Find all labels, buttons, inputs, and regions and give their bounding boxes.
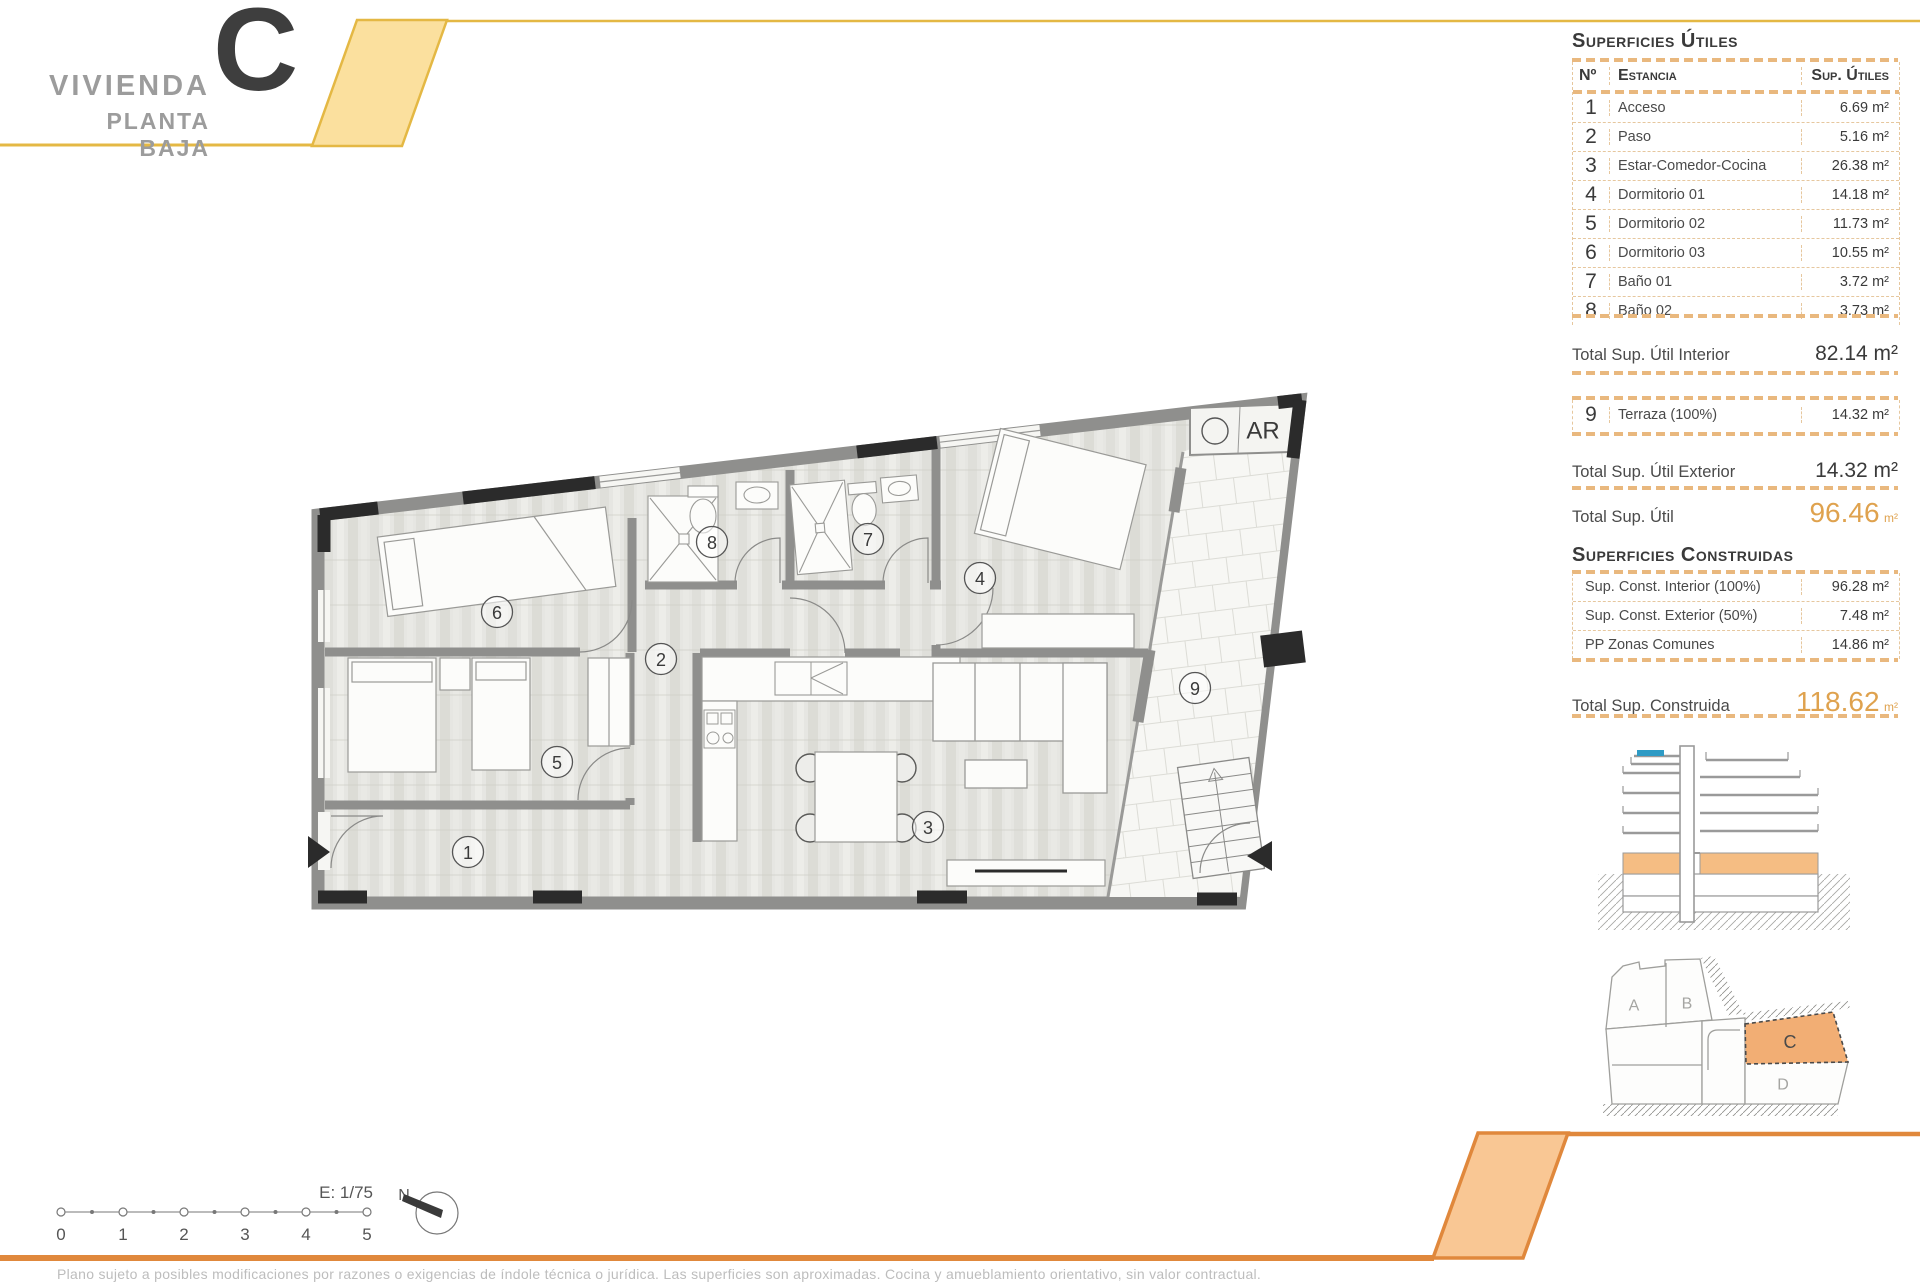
pool-blue xyxy=(1637,750,1664,756)
table-row: 2 Paso 5.16 m² xyxy=(1573,123,1899,152)
terraza-row: 9 Terraza (100%) 14.32 m² xyxy=(1572,400,1900,430)
unit-c-highlight xyxy=(1745,1012,1848,1064)
svg-text:4: 4 xyxy=(975,569,985,589)
svg-text:2: 2 xyxy=(656,650,666,670)
room-label-6: 6 xyxy=(482,597,513,628)
utiles-table-header: Nº Estancia Sup. Útiles xyxy=(1573,62,1899,90)
ground-floor-right-highlight xyxy=(1700,853,1818,874)
svg-text:5: 5 xyxy=(552,753,562,773)
left-tower-ticks xyxy=(1623,757,1631,833)
svg-text:3: 3 xyxy=(923,818,933,838)
site-label-a: A xyxy=(1629,998,1640,1015)
construidas-table: Sup. Const. Interior (100%) 96.28 m² Sup… xyxy=(1572,573,1900,659)
svg-text:8: 8 xyxy=(707,533,717,553)
top-accent-parallelogram xyxy=(312,20,447,146)
utiles-table: Nº Estancia Sup. Útiles 1 Acceso 6.69 m²… xyxy=(1572,62,1900,325)
construidas-heading: Superficies Construidas xyxy=(1572,544,1793,567)
project-name: VIVIENDA xyxy=(48,70,210,103)
total-exterior: Total Sup. Útil Exterior 14.32 m² xyxy=(1572,459,1898,483)
room-label-5: 5 xyxy=(542,747,573,778)
svg-text:7: 7 xyxy=(863,530,873,550)
room-label-8: 8 xyxy=(697,527,728,558)
room-label-1: 1 xyxy=(453,837,484,868)
site-label-b: B xyxy=(1682,996,1693,1013)
site-label-d: D xyxy=(1777,1077,1789,1094)
stove xyxy=(704,710,735,748)
svg-text:1: 1 xyxy=(463,843,473,863)
divider xyxy=(1572,714,1898,718)
divider xyxy=(1572,314,1898,318)
bottom-accent-band xyxy=(0,1128,1920,1268)
bed-dormitorio-01 xyxy=(974,428,1146,648)
table-row: 1 Acceso 6.69 m² xyxy=(1573,94,1899,123)
table-row: 7 Baño 01 3.72 m² xyxy=(1573,268,1899,297)
ar-box: AR xyxy=(1190,404,1295,455)
table-row: Sup. Const. Interior (100%) 96.28 m² xyxy=(1573,573,1899,602)
total-interior: Total Sup. Útil Interior 82.14 m² xyxy=(1572,342,1898,366)
floor-plan: AR xyxy=(250,320,1350,920)
site-label-c: C xyxy=(1784,1032,1797,1052)
divider xyxy=(1572,371,1898,375)
total-util: Total Sup. Útil 96.46 m² xyxy=(1572,497,1898,529)
divider xyxy=(1572,432,1898,436)
table-row: 3 Estar-Comedor-Cocina 26.38 m² xyxy=(1573,152,1899,181)
divider xyxy=(1572,658,1898,662)
room-label-7: 7 xyxy=(853,524,884,555)
col-area: Sup. Útiles xyxy=(1801,67,1899,85)
divider xyxy=(1573,90,1899,94)
utiles-heading: Superficies Útiles xyxy=(1572,30,1738,53)
divider xyxy=(1572,486,1898,490)
bottom-accent-parallelogram xyxy=(1433,1133,1568,1258)
ar-label: AR xyxy=(1246,418,1279,445)
right-tower-ticks xyxy=(1706,752,1818,831)
sideboard-dormitorio-01 xyxy=(982,614,1134,648)
tv-sideboard xyxy=(947,860,1105,886)
col-room: Estancia xyxy=(1609,67,1801,85)
left-tower xyxy=(1623,756,1680,833)
coffee-table xyxy=(965,760,1027,788)
svg-text:9: 9 xyxy=(1190,679,1200,699)
col-num: Nº xyxy=(1573,67,1609,85)
floor-name: PLANTA BAJA xyxy=(42,108,210,162)
core-shaft xyxy=(1680,746,1694,922)
hatch-strip-bottom xyxy=(1603,1104,1838,1116)
terrace-planter xyxy=(1260,631,1306,668)
areas-panel: Superficies Útiles Nº Estancia Sup. Útil… xyxy=(1572,0,1898,730)
building-section-diagram xyxy=(1598,742,1858,932)
room-label-9: 9 xyxy=(1180,673,1211,704)
table-row: 4 Dormitorio 01 14.18 m² xyxy=(1573,181,1899,210)
table-row: Sup. Const. Exterior (50%) 7.48 m² xyxy=(1573,602,1899,631)
stairs xyxy=(1178,758,1265,879)
table-row: 8 Baño 02 3.73 m² xyxy=(1573,297,1899,325)
unit-letter: C xyxy=(213,0,298,118)
table-row: 9 Terraza (100%) 14.32 m² xyxy=(1573,400,1899,430)
room-label-4: 4 xyxy=(965,563,996,594)
site-key-plan: A B C D xyxy=(1595,950,1865,1122)
table-row: PP Zonas Comunes 14.86 m² xyxy=(1573,631,1899,659)
table-row: 6 Dormitorio 03 10.55 m² xyxy=(1573,239,1899,268)
room-label-2: 2 xyxy=(646,644,677,675)
table-row: 5 Dormitorio 02 11.73 m² xyxy=(1573,210,1899,239)
svg-text:6: 6 xyxy=(492,603,502,623)
room-label-3: 3 xyxy=(913,812,944,843)
ground-floor-left-highlight xyxy=(1623,853,1680,874)
plan-sheet-page: { "title": { "project": "VIVIENDA", "uni… xyxy=(0,0,1920,1280)
